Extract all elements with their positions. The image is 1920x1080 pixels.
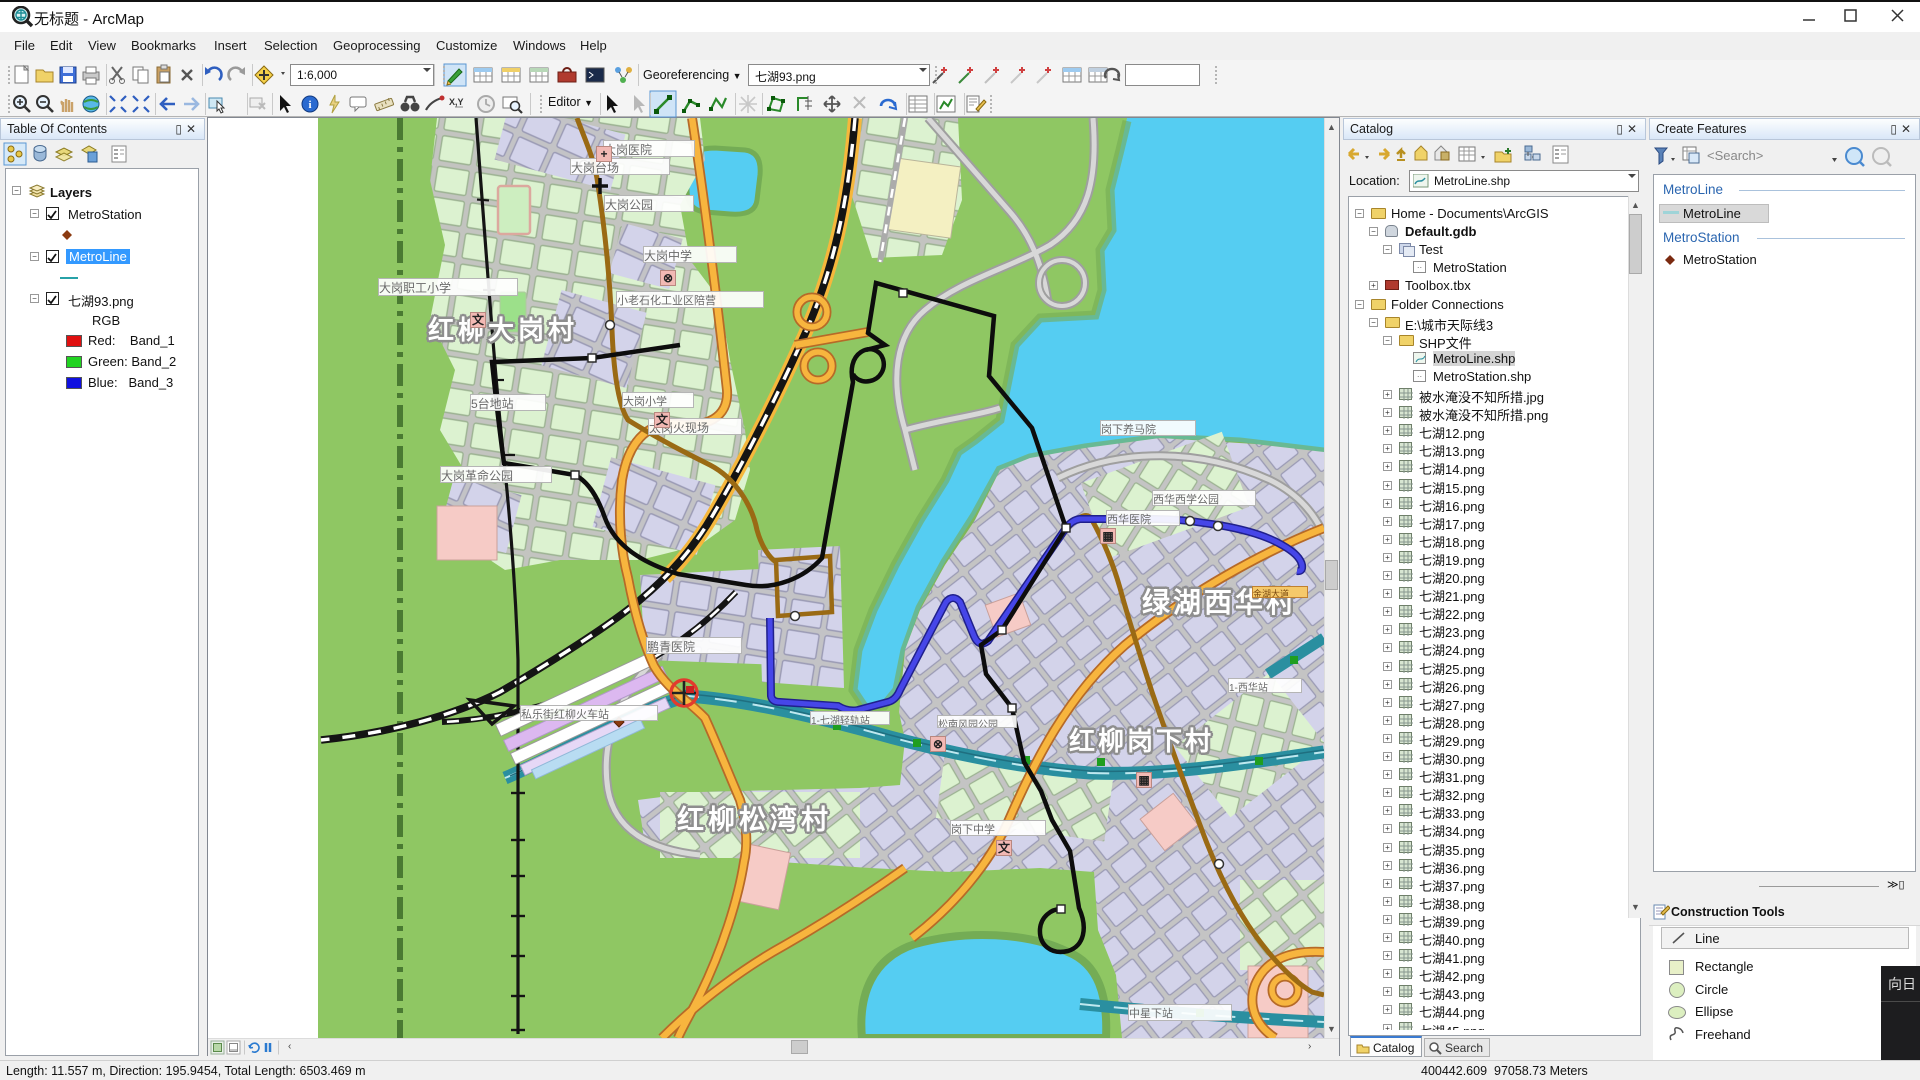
svg-text:X,Y: X,Y xyxy=(449,97,464,107)
svg-text:i: i xyxy=(308,99,311,111)
